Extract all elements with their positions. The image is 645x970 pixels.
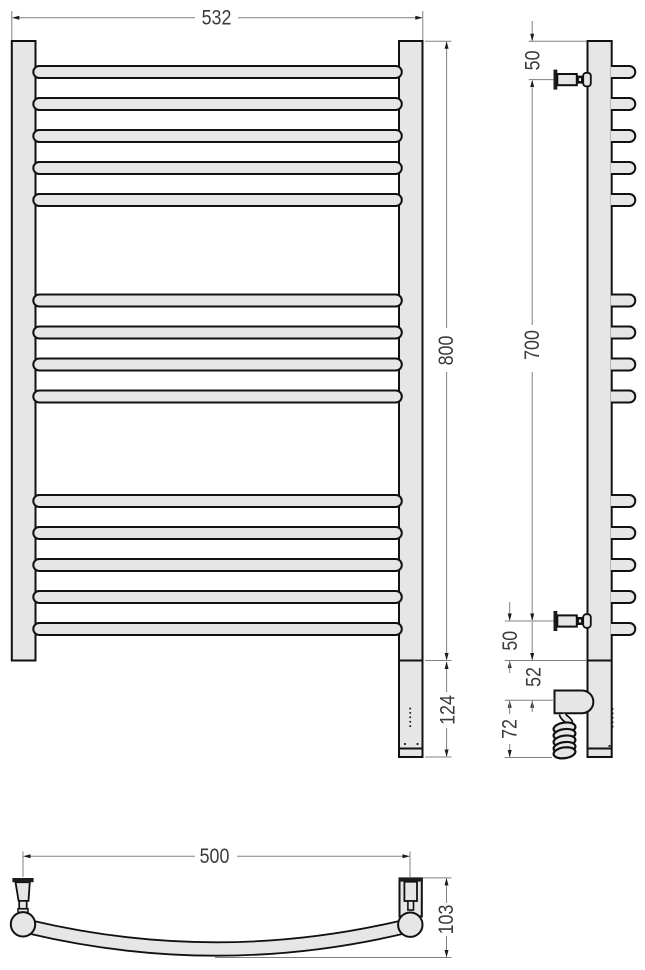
svg-text:800: 800 [435,335,459,365]
svg-text:50: 50 [521,50,545,70]
svg-text:50: 50 [499,631,523,651]
svg-text:103: 103 [435,905,459,935]
svg-text:700: 700 [521,330,545,360]
svg-text:500: 500 [200,845,230,869]
svg-text:532: 532 [202,6,232,30]
svg-text:72: 72 [498,719,522,739]
svg-text:52: 52 [522,667,546,687]
svg-text:124: 124 [436,695,460,725]
